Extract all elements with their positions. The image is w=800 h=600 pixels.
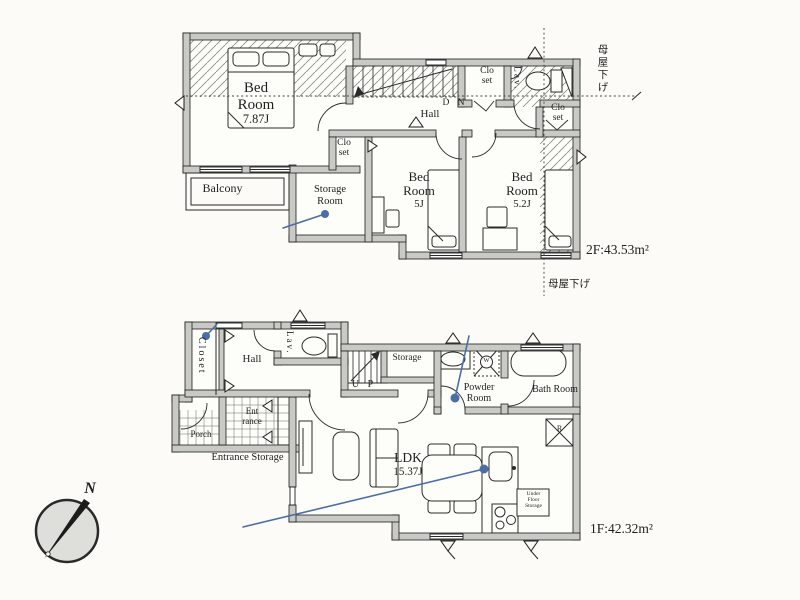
floor2-plan (175, 28, 641, 296)
room-label-powder-room: Powder Room (456, 382, 502, 404)
label-under-floor-storage: Under Floor Storage (520, 491, 547, 509)
roof-note-right: 母屋下げ (596, 44, 608, 94)
wall-marker (441, 541, 455, 551)
room-label-balcony: Balcony (185, 182, 260, 195)
roof-note-bottom: 母屋下げ (548, 279, 590, 291)
room-label-closet-1f: Closet (196, 337, 207, 375)
wall-marker (524, 541, 538, 551)
wall-marker (175, 96, 184, 110)
refrigerator-letter: R (553, 425, 566, 434)
cushion (299, 44, 317, 56)
compass-icon (36, 499, 98, 562)
room-label-bath-room: Bath Room (532, 384, 578, 395)
cushion (320, 44, 335, 56)
floor-plan-page: Bed Room7.87J Balcony Storage Room Clo s… (0, 0, 800, 600)
bathtub (511, 349, 566, 376)
floor1-area-label: 1F:42.32m² (590, 522, 653, 537)
wall-marker (293, 310, 307, 321)
toilet (526, 72, 550, 90)
label-entrance-storage: Entrance Storage (190, 452, 305, 464)
room-label-storage-2f: Storage Room (306, 184, 354, 207)
room-label-closet-right-2f: Clo set (545, 103, 571, 124)
room-label-porch: Porch (181, 430, 221, 440)
room-label-ldk: LDK15.37J (376, 451, 440, 478)
stairs-direction-dn: D N (437, 98, 473, 108)
photo-marker (321, 210, 329, 218)
room-label-bedroom-main: Bed Room7.87J (224, 80, 288, 127)
room-label-bedroom-52: Bed Room5.2J (498, 170, 546, 210)
room-label-bedroom-5: Bed Room5J (396, 170, 442, 210)
room-label-hall-1f: Hall (230, 353, 274, 365)
room-label-hall-2f: Hall (408, 108, 452, 120)
wall-marker (528, 47, 542, 58)
floor-plan-drawing (0, 0, 800, 600)
wall-marker (446, 333, 460, 343)
floor1-plan (172, 310, 580, 559)
kitchen-counter (482, 447, 518, 534)
room-label-storage-1f: Storage (382, 353, 432, 363)
wall-marker (577, 150, 586, 164)
wall-marker (526, 333, 540, 343)
photo-marker (480, 465, 489, 474)
room-label-entrance: Ent rance (236, 407, 268, 427)
room-label-lav-2f: Lav. (511, 66, 521, 91)
room-label-lav-1f: Lav. (284, 331, 294, 355)
room-label-closet-small-2f: Clo set (331, 138, 357, 159)
washer-letter: W (480, 357, 493, 364)
compass-north-label: N (80, 480, 100, 498)
stairs-direction-up: U P (347, 379, 381, 390)
room-label-closet-top-2f: Clo set (474, 66, 500, 87)
floor2-area-label: 2F:43.53m² (586, 243, 649, 258)
